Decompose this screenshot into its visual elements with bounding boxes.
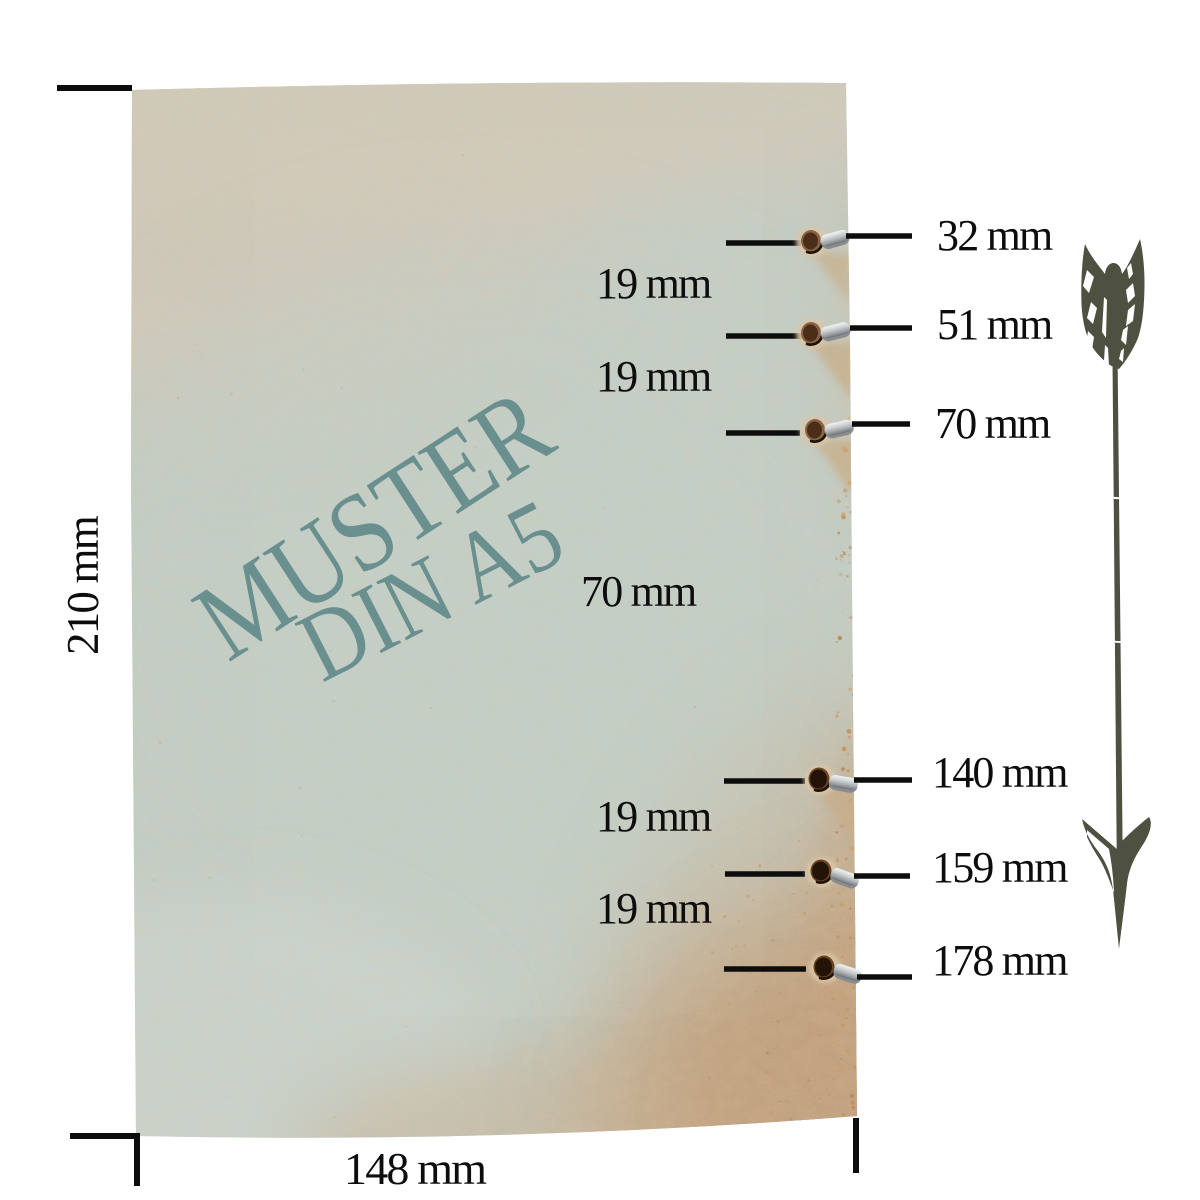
svg-text:19 mm: 19 mm (596, 259, 712, 308)
svg-text:19 mm: 19 mm (596, 352, 712, 401)
svg-text:19 mm: 19 mm (596, 884, 712, 933)
svg-text:140 mm: 140 mm (932, 748, 1068, 797)
svg-text:148 mm: 148 mm (344, 1143, 487, 1194)
svg-text:51 mm: 51 mm (937, 300, 1053, 349)
svg-text:70 mm: 70 mm (581, 567, 697, 616)
svg-text:32 mm: 32 mm (937, 211, 1053, 260)
svg-text:178 mm: 178 mm (932, 936, 1068, 985)
svg-text:19 mm: 19 mm (596, 792, 712, 841)
svg-text:210 mm: 210 mm (58, 515, 108, 655)
svg-text:159 mm: 159 mm (932, 843, 1068, 892)
svg-text:70 mm: 70 mm (935, 399, 1051, 448)
